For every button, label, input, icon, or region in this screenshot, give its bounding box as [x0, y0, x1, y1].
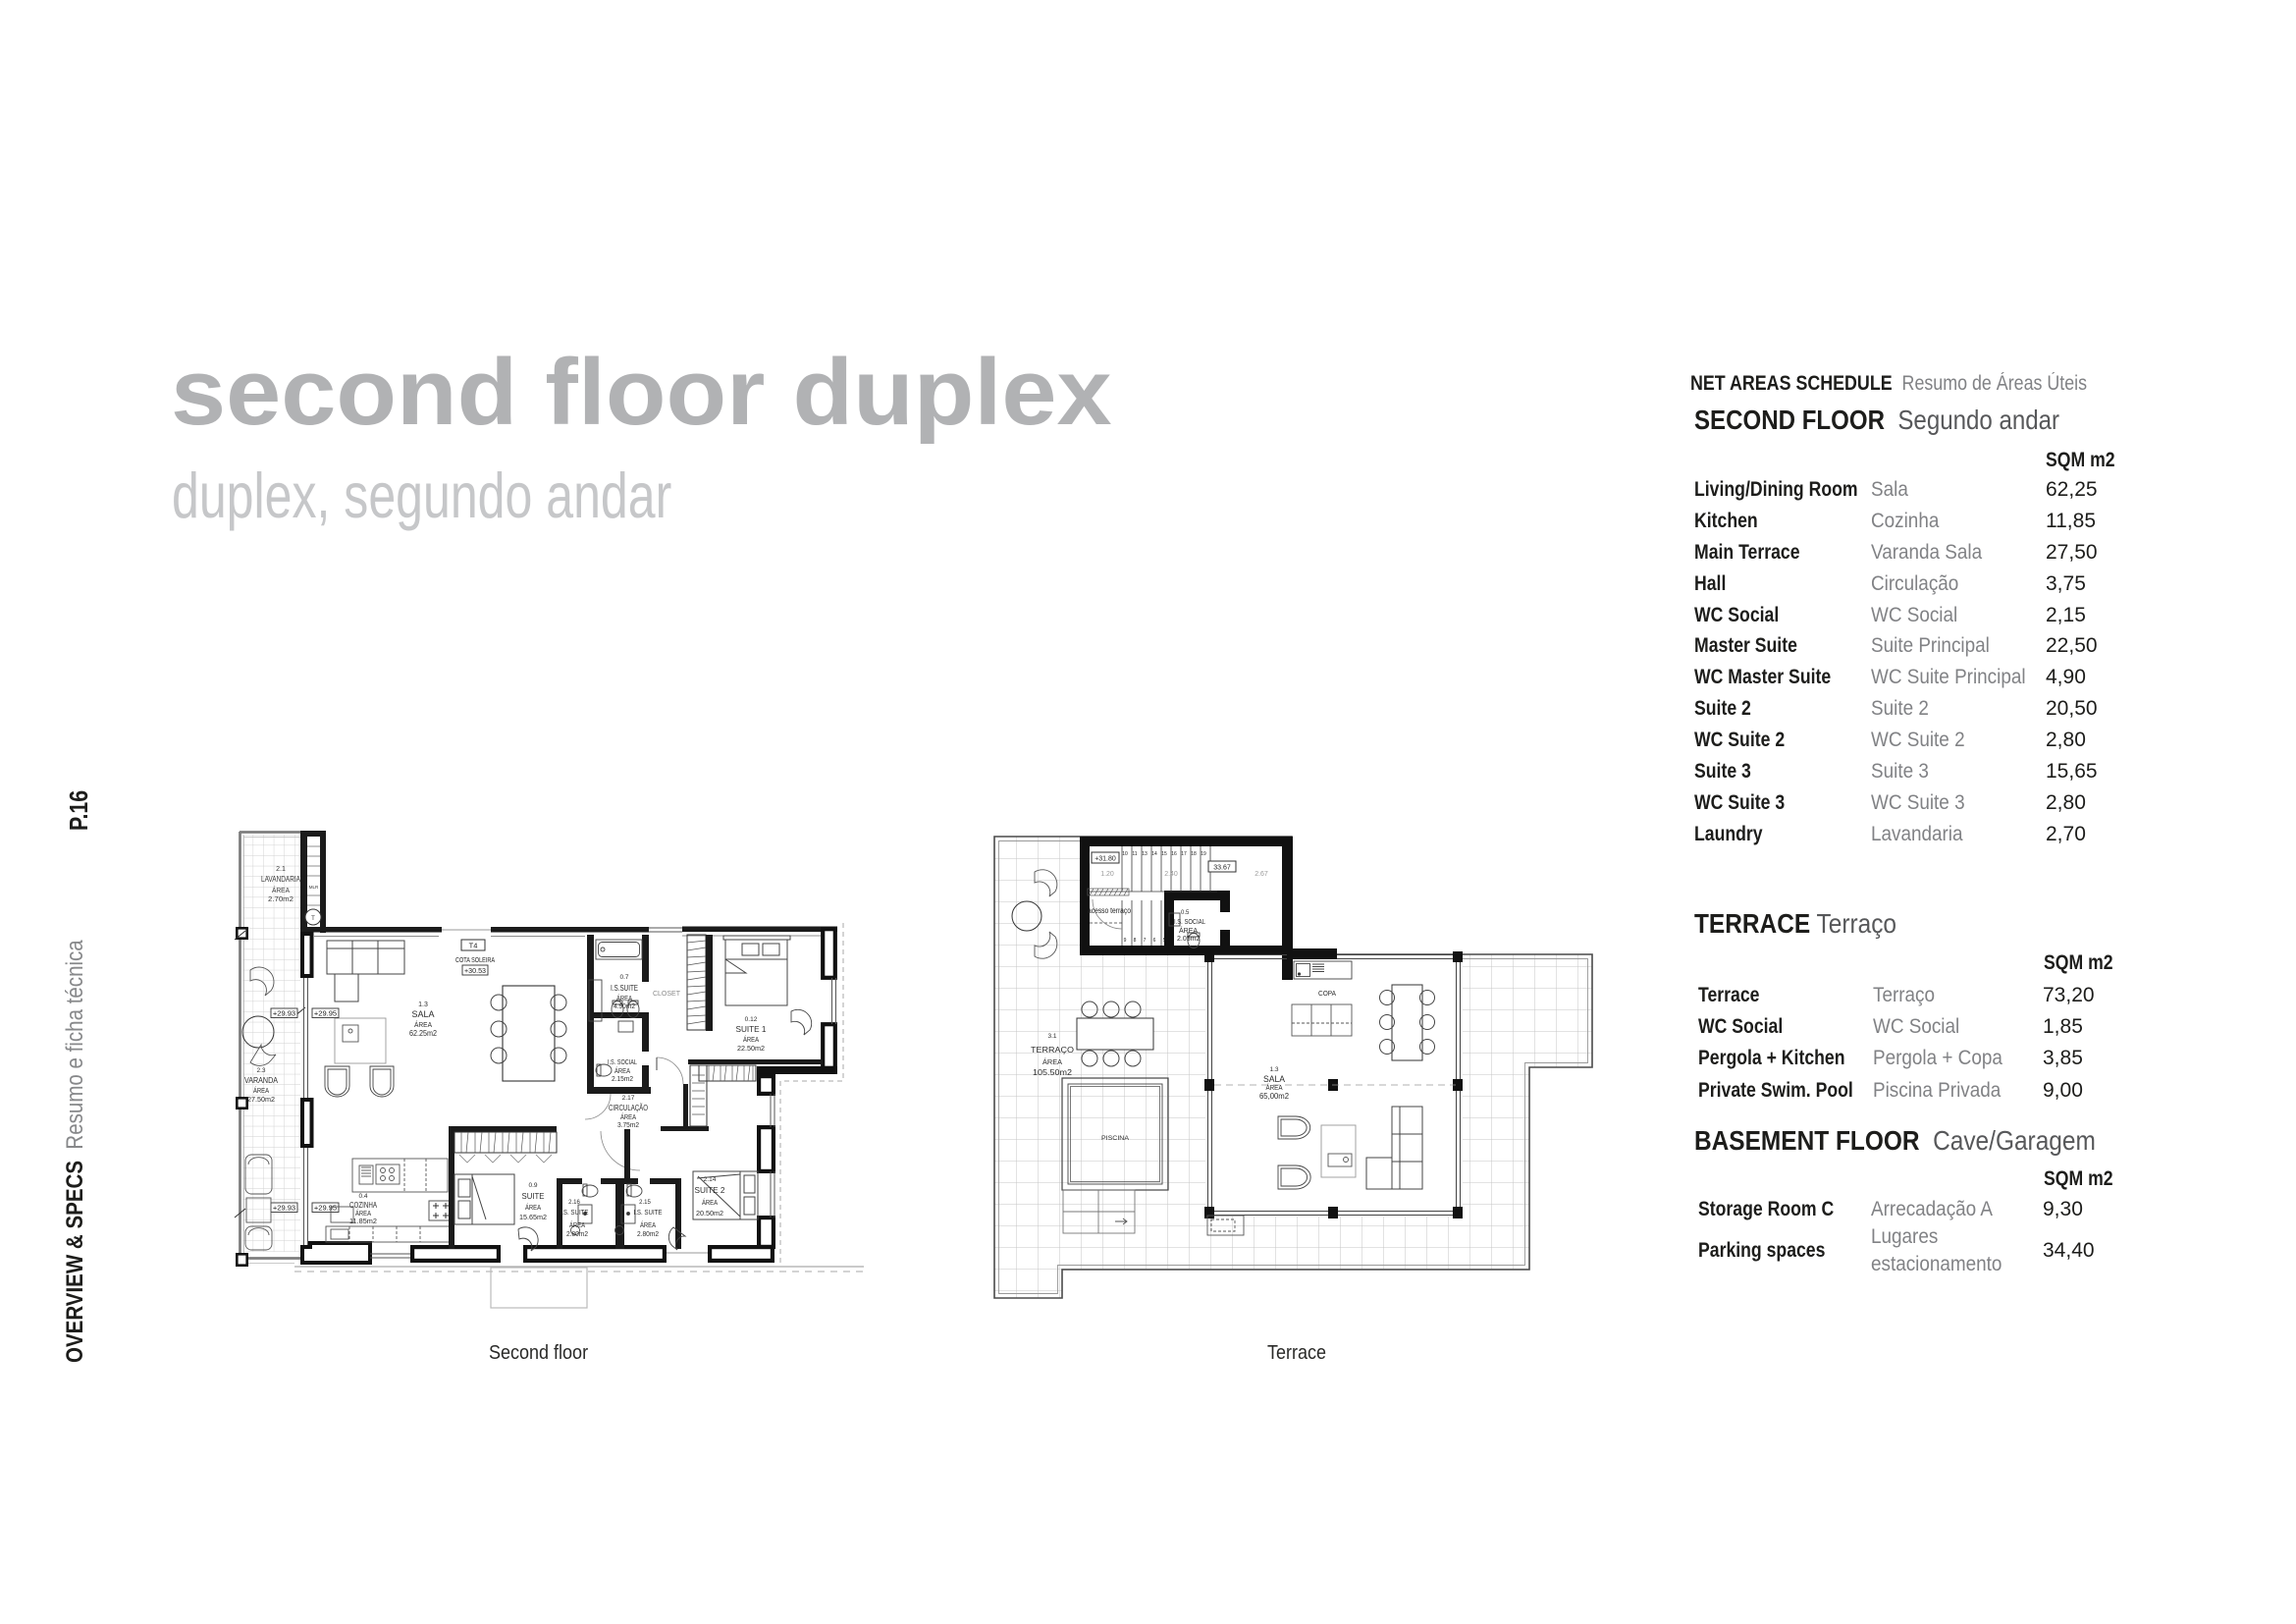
- svg-text:ÁREA: ÁREA: [702, 1198, 718, 1207]
- svg-text:1.20: 1.20: [1100, 871, 1114, 878]
- svg-text:9: 9: [1124, 938, 1127, 944]
- svg-text:0.5: 0.5: [1181, 910, 1190, 916]
- svg-text:2.05m2: 2.05m2: [1177, 936, 1200, 943]
- svg-text:2.67: 2.67: [1255, 871, 1268, 878]
- svg-text:I.S. SUITE: I.S. SUITE: [634, 1208, 663, 1217]
- svg-text:ÁREA: ÁREA: [640, 1220, 656, 1229]
- svg-text:1.3: 1.3: [1269, 1066, 1278, 1073]
- svg-text:ÁREA: ÁREA: [1266, 1083, 1283, 1092]
- svg-text:ÁREA: ÁREA: [253, 1086, 269, 1095]
- svg-text:11.85m2: 11.85m2: [349, 1217, 377, 1225]
- svg-text:acesso terraço: acesso terraço: [1088, 906, 1131, 915]
- svg-text:10: 10: [1122, 851, 1128, 857]
- svg-text:13: 13: [1142, 851, 1148, 857]
- svg-text:8: 8: [1134, 938, 1137, 944]
- svg-text:SUITE: SUITE: [522, 1191, 545, 1201]
- svg-text:COPA: COPA: [1318, 991, 1336, 998]
- svg-text:VARANDA: VARANDA: [244, 1076, 279, 1085]
- svg-text:14: 14: [1151, 851, 1157, 857]
- svg-text:ÁREA: ÁREA: [1179, 926, 1198, 935]
- svg-text:16: 16: [1171, 851, 1177, 857]
- svg-text:3.1: 3.1: [1047, 1033, 1056, 1040]
- svg-text:27.50m2: 27.50m2: [247, 1095, 275, 1104]
- svg-text:ÁREA: ÁREA: [1042, 1057, 1062, 1066]
- svg-text:65,00m2: 65,00m2: [1259, 1092, 1290, 1101]
- svg-text:19: 19: [1201, 851, 1206, 857]
- svg-text:ÁREA: ÁREA: [569, 1220, 585, 1229]
- svg-text:2.3: 2.3: [256, 1067, 265, 1074]
- svg-text:2.80m2: 2.80m2: [637, 1231, 659, 1238]
- svg-text:11: 11: [1132, 851, 1137, 857]
- svg-text:2.80m2: 2.80m2: [566, 1231, 588, 1238]
- svg-text:SUITE 2: SUITE 2: [695, 1185, 725, 1195]
- svg-text:0.4: 0.4: [358, 1193, 367, 1200]
- svg-text:33.67: 33.67: [1213, 865, 1231, 872]
- svg-text:6: 6: [1153, 938, 1156, 944]
- svg-text:PISCINA: PISCINA: [1101, 1135, 1130, 1142]
- svg-text:18: 18: [1191, 851, 1197, 857]
- svg-text:COZINHA: COZINHA: [349, 1201, 378, 1210]
- svg-text:15: 15: [1161, 851, 1167, 857]
- svg-text:I.S. SUITE: I.S. SUITE: [561, 1208, 589, 1217]
- svg-text:2.16: 2.16: [568, 1200, 580, 1206]
- svg-text:0.9: 0.9: [528, 1182, 537, 1189]
- svg-text:20.50m2: 20.50m2: [696, 1209, 723, 1218]
- svg-text:2.40: 2.40: [1164, 871, 1178, 878]
- svg-text:7: 7: [1144, 938, 1147, 944]
- svg-text:ÁREA: ÁREA: [525, 1203, 541, 1212]
- svg-text:2.15: 2.15: [639, 1200, 651, 1206]
- svg-text:TERRAÇO: TERRAÇO: [1031, 1045, 1074, 1055]
- svg-text:2.14: 2.14: [704, 1176, 717, 1183]
- svg-text:5: 5: [1163, 938, 1166, 944]
- svg-text:105.50m2: 105.50m2: [1033, 1068, 1073, 1077]
- svg-text:15.65m2: 15.65m2: [519, 1213, 547, 1221]
- svg-text:17: 17: [1181, 851, 1187, 857]
- svg-text:I.S. SOCIAL: I.S. SOCIAL: [1174, 917, 1205, 926]
- svg-text:+31.80: +31.80: [1095, 856, 1116, 863]
